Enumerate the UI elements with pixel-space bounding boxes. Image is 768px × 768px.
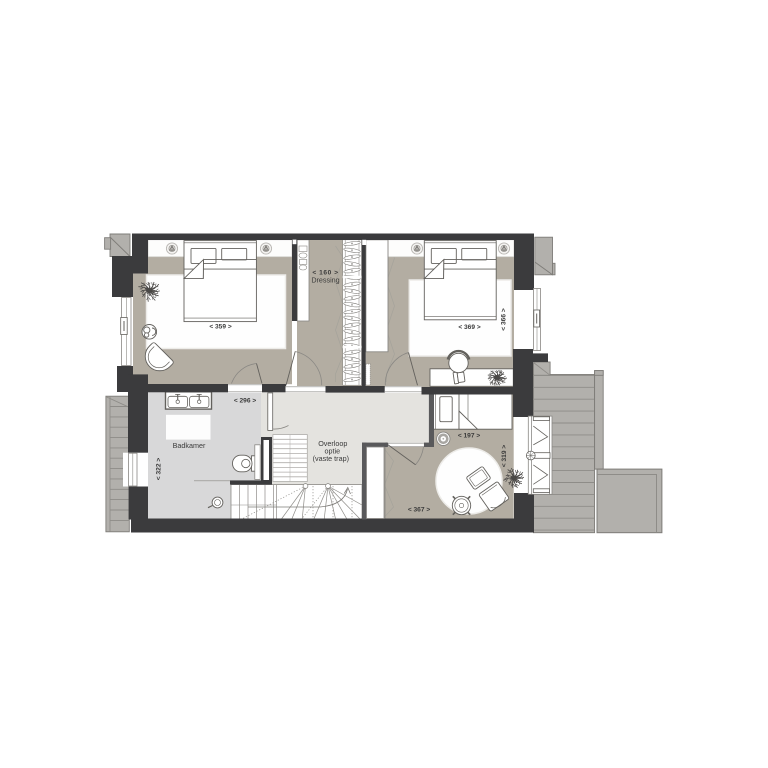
svg-text:< 296 >: < 296 > — [234, 398, 257, 405]
svg-text:Badkamer: Badkamer — [173, 441, 206, 450]
svg-text:< 322 >: < 322 > — [155, 458, 162, 481]
svg-text:< 197 >: < 197 > — [458, 433, 481, 440]
svg-text:< 319 >: < 319 > — [501, 445, 508, 468]
svg-text:< 367 >: < 367 > — [408, 507, 431, 514]
svg-text:Dressing: Dressing — [311, 276, 339, 285]
svg-text:< 359 >: < 359 > — [209, 324, 232, 331]
svg-text:< 366 >: < 366 > — [501, 308, 508, 331]
svg-text:< 369 >: < 369 > — [458, 324, 481, 331]
svg-text:(vaste trap): (vaste trap) — [313, 454, 349, 463]
